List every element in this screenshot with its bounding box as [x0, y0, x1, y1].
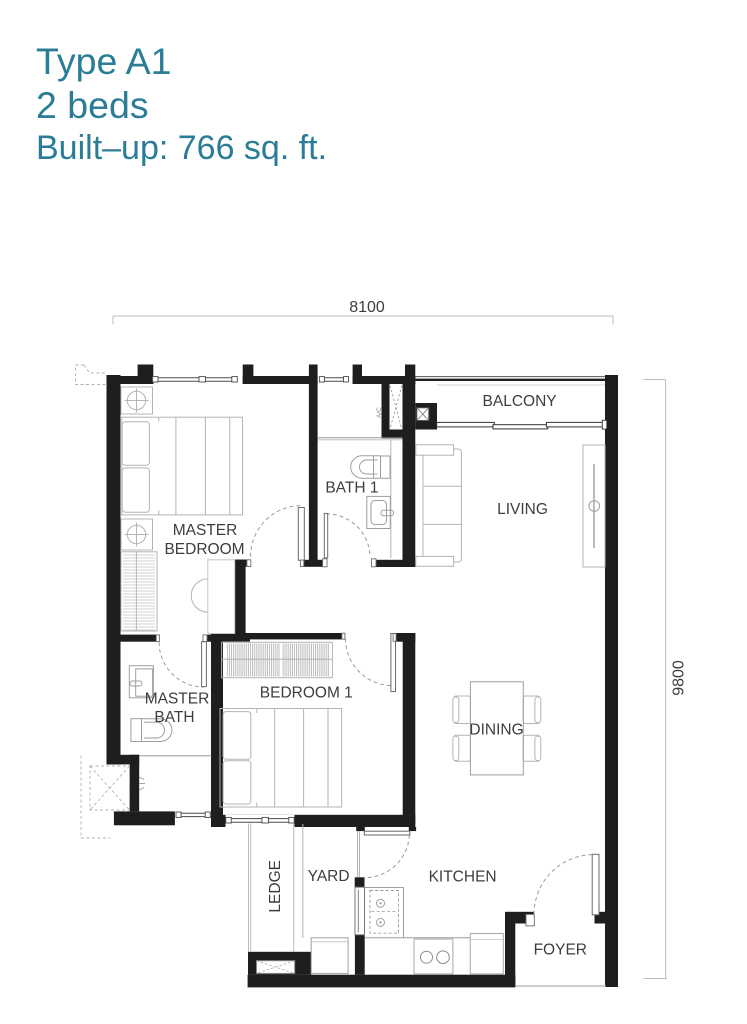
svg-text:KITCHEN: KITCHEN	[429, 869, 497, 886]
svg-text:8100: 8100	[349, 299, 385, 316]
svg-text:9800: 9800	[671, 660, 688, 696]
svg-text:A/C: A/C	[376, 407, 383, 418]
svg-text:DINING: DINING	[469, 721, 523, 738]
svg-text:MASTER: MASTER	[145, 691, 210, 708]
svg-text:2 beds: 2 beds	[36, 84, 149, 126]
svg-text:BEDROOM 1: BEDROOM 1	[260, 684, 353, 701]
svg-text:FOYER: FOYER	[534, 941, 587, 958]
svg-text:BATH 1: BATH 1	[325, 479, 378, 496]
svg-text:YARD: YARD	[308, 868, 350, 885]
svg-text:Built–up: 766 sq. ft.: Built–up: 766 sq. ft.	[36, 129, 327, 167]
svg-text:BATH: BATH	[154, 709, 194, 726]
svg-text:BEDROOM: BEDROOM	[164, 541, 244, 558]
svg-text:MASTER: MASTER	[173, 522, 238, 539]
svg-text:BALCONY: BALCONY	[483, 393, 557, 410]
svg-text:Type A1: Type A1	[36, 40, 172, 82]
svg-text:LEDGE: LEDGE	[267, 860, 284, 913]
svg-text:LIVING: LIVING	[497, 501, 548, 518]
